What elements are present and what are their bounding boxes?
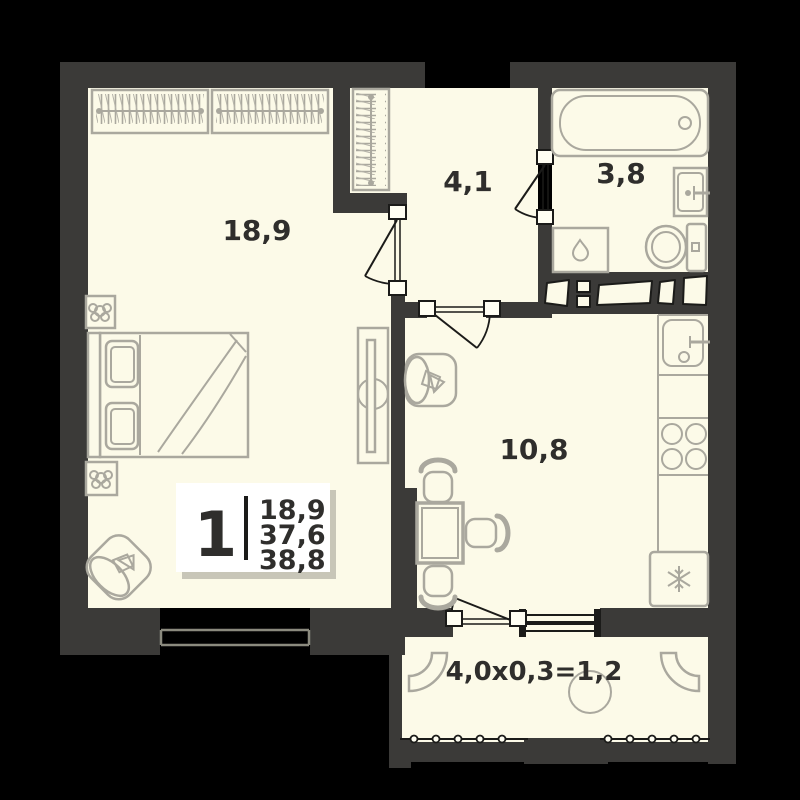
badge-total-area: 38,8 <box>259 545 326 576</box>
wall-top-right <box>510 62 736 88</box>
wall-right <box>708 62 736 764</box>
wall-left <box>60 62 88 655</box>
vent-shaft <box>597 281 652 305</box>
vent-shaft <box>545 280 569 306</box>
fridge <box>650 552 708 606</box>
room-label-balcony: 4,0x0,3=1,2 <box>446 657 623 687</box>
entrance-opening <box>425 62 510 88</box>
room-label-hallway: 4,1 <box>443 165 493 198</box>
closet-wardrobe <box>353 89 389 190</box>
armchair <box>405 354 456 406</box>
badge-divider <box>244 496 248 560</box>
wall-closet-niche <box>333 62 350 213</box>
bed <box>88 333 248 457</box>
plant-stand <box>86 296 115 328</box>
bedroom-window <box>161 630 309 645</box>
washbasin <box>674 168 710 216</box>
vent-shaft <box>577 281 590 292</box>
dining-table <box>417 503 463 563</box>
wall-kitchen-column <box>391 488 417 620</box>
balustrade-center <box>524 738 608 764</box>
wardrobe <box>92 90 208 133</box>
plant-stand <box>86 462 117 495</box>
washing-machine <box>553 228 608 272</box>
bathtub <box>552 90 708 156</box>
room-label-kitchen: 10,8 <box>499 433 568 466</box>
room-label-bathroom: 3,8 <box>596 157 646 190</box>
wardrobe <box>212 90 328 133</box>
floor-plan-canvas: 18,9 4,1 3,8 10,8 4,0x0,3=1,2 1 18,9 37,… <box>0 0 800 800</box>
wall-bedroom-bottom-left <box>60 608 160 655</box>
wall-kitchen-balcony-right <box>600 608 710 637</box>
tv-stand <box>358 328 388 463</box>
kitchen-window <box>519 609 601 637</box>
toilet <box>646 224 706 271</box>
balustrade-right <box>608 742 710 762</box>
badge-rooms-count: 1 <box>194 498 237 571</box>
wall-top-left <box>60 62 425 88</box>
wall-kitchen-balcony-left <box>391 608 453 637</box>
vent-shaft <box>683 276 707 305</box>
balustrade-post-left <box>389 738 411 768</box>
vent-shaft <box>658 280 675 304</box>
wall-balcony-left <box>389 637 402 744</box>
vent-shaft <box>577 296 590 307</box>
room-label-bedroom: 18,9 <box>222 214 291 247</box>
area-badge: 1 18,9 37,6 38,8 <box>176 483 336 579</box>
balustrade-left <box>394 742 524 762</box>
floor-plan: 18,9 4,1 3,8 10,8 4,0x0,3=1,2 1 18,9 37,… <box>0 0 800 800</box>
